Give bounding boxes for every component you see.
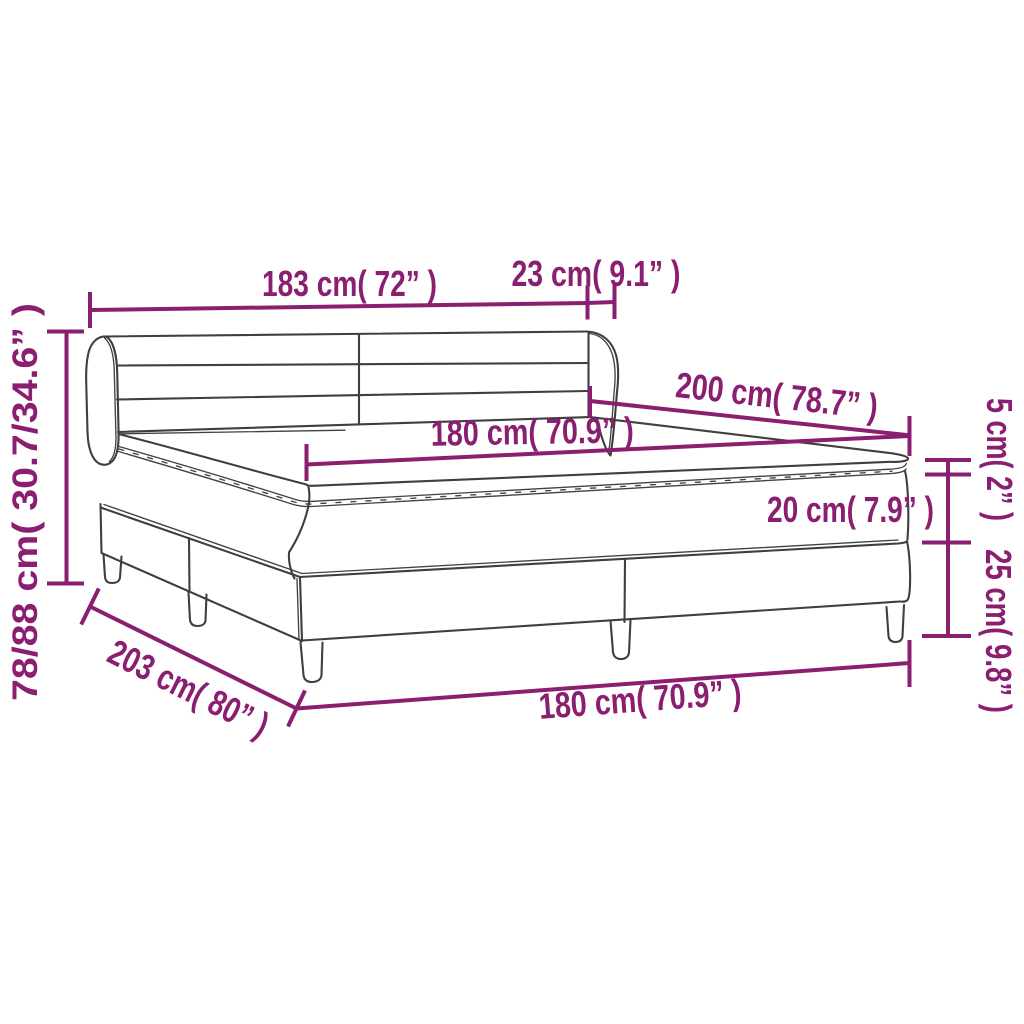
svg-text:5 cm( 2” ): 5 cm( 2” ) — [979, 398, 1020, 521]
svg-text:78/88 cm( 30.7/34.6” ): 78/88 cm( 30.7/34.6” ) — [6, 303, 45, 701]
svg-text:180 cm( 70.9” ): 180 cm( 70.9” ) — [430, 409, 634, 454]
svg-text:183 cm( 72” ): 183 cm( 72” ) — [262, 263, 437, 304]
svg-text:25 cm( 9.8” ): 25 cm( 9.8” ) — [978, 549, 1019, 713]
svg-text:23 cm( 9.1” ): 23 cm( 9.1” ) — [512, 253, 681, 294]
svg-text:20 cm( 7.9” ): 20 cm( 7.9” ) — [767, 489, 934, 530]
